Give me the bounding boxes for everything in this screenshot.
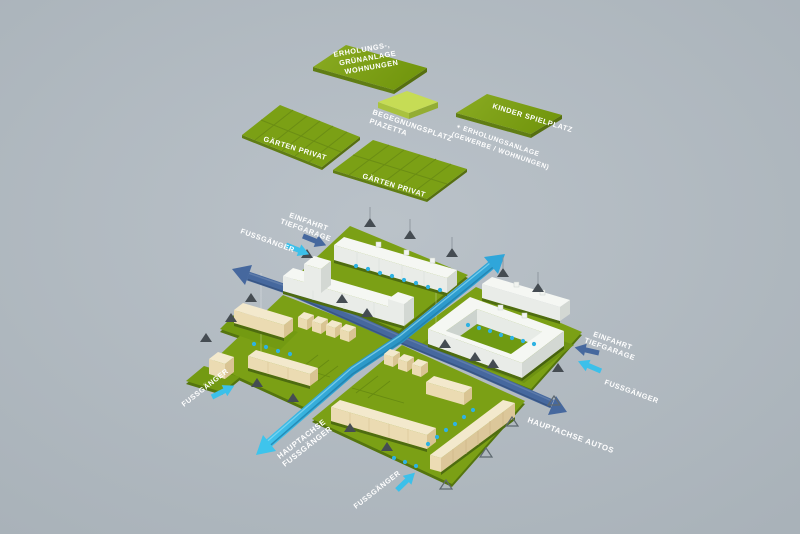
diagram-canvas: ERHOLUNGS-,GRÜNANLAGEWOHNUNGEN BEGEGNUNG… [0,0,800,534]
urban-plan-diagram: ERHOLUNGS-,GRÜNANLAGEWOHNUNGEN BEGEGNUNG… [0,0,800,534]
building-white-tower [304,256,331,293]
